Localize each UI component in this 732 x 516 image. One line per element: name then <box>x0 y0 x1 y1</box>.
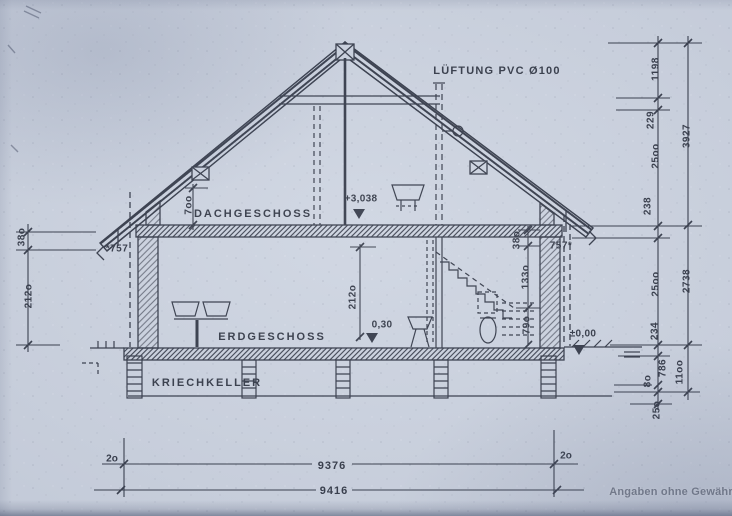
level-ground-offset: 0,30 <box>372 320 393 331</box>
dim-bottom-span-outer: 9416 <box>320 485 348 497</box>
dim-right-inner-2500b: 25oo <box>651 271 662 296</box>
dim-right-inner-234: 234 <box>650 322 661 340</box>
vent-pipe-label: LÜFTUNG PVC Ø100 <box>433 65 560 77</box>
dim-eaves-left: *757 <box>106 244 129 255</box>
section-drawing <box>0 0 732 516</box>
ground-floor-label: ERDGESCHOSS <box>218 331 326 343</box>
dim-right-inner-80: 8o <box>643 375 654 388</box>
crawl-space-label: KRIECHKELLER <box>152 377 262 389</box>
dim-eaves-right: 757* <box>550 241 573 252</box>
dim-bottom-offset-right: 2o <box>560 451 572 462</box>
dim-bottom-offset-left: 2o <box>106 454 118 465</box>
dim-right-inner-229: 229 <box>646 111 657 129</box>
dim-right-outer-1100: 11oo <box>675 360 686 385</box>
level-attic-floor: +3,038 <box>345 194 378 205</box>
disclaimer-watermark: Angaben ohne Gewähr <box>609 486 732 498</box>
dim-right-outer-3927: 3927 <box>682 124 693 148</box>
ground-floor-slab <box>124 348 564 360</box>
level-zero: ±0,00 <box>570 329 596 340</box>
dim-knee-wall: 7oo <box>184 195 195 214</box>
blueprint-photo: LÜFTUNG PVC Ø100 DACHGESCHOSS ERDGESCHOS… <box>0 0 732 516</box>
dim-right-inner-250: 25o <box>652 401 663 420</box>
wall-right <box>540 237 560 348</box>
dim-right-inner-1198: 1198 <box>651 57 662 81</box>
dim-stairs-mid: 133o <box>521 265 532 290</box>
dim-stairs-top: 38o <box>512 231 523 250</box>
dim-room-height: 212o <box>348 285 359 310</box>
dim-right-inner-238: 238 <box>643 197 654 215</box>
wall-left <box>138 237 158 348</box>
dim-left-slab: 38o <box>17 228 28 247</box>
dim-stairs-low: 79o <box>522 316 533 335</box>
dim-bottom-span-inner: 9376 <box>318 460 346 472</box>
attic-label: DACHGESCHOSS <box>194 208 312 220</box>
dim-right-inner-786: 786 <box>658 359 669 377</box>
paper-grain <box>0 0 732 516</box>
dim-right-outer-2738: 2738 <box>682 269 693 293</box>
dim-right-inner-2500a: 25oo <box>651 143 662 168</box>
attic-floor-slab <box>136 225 562 237</box>
dim-left-storey: 212o <box>24 284 35 309</box>
